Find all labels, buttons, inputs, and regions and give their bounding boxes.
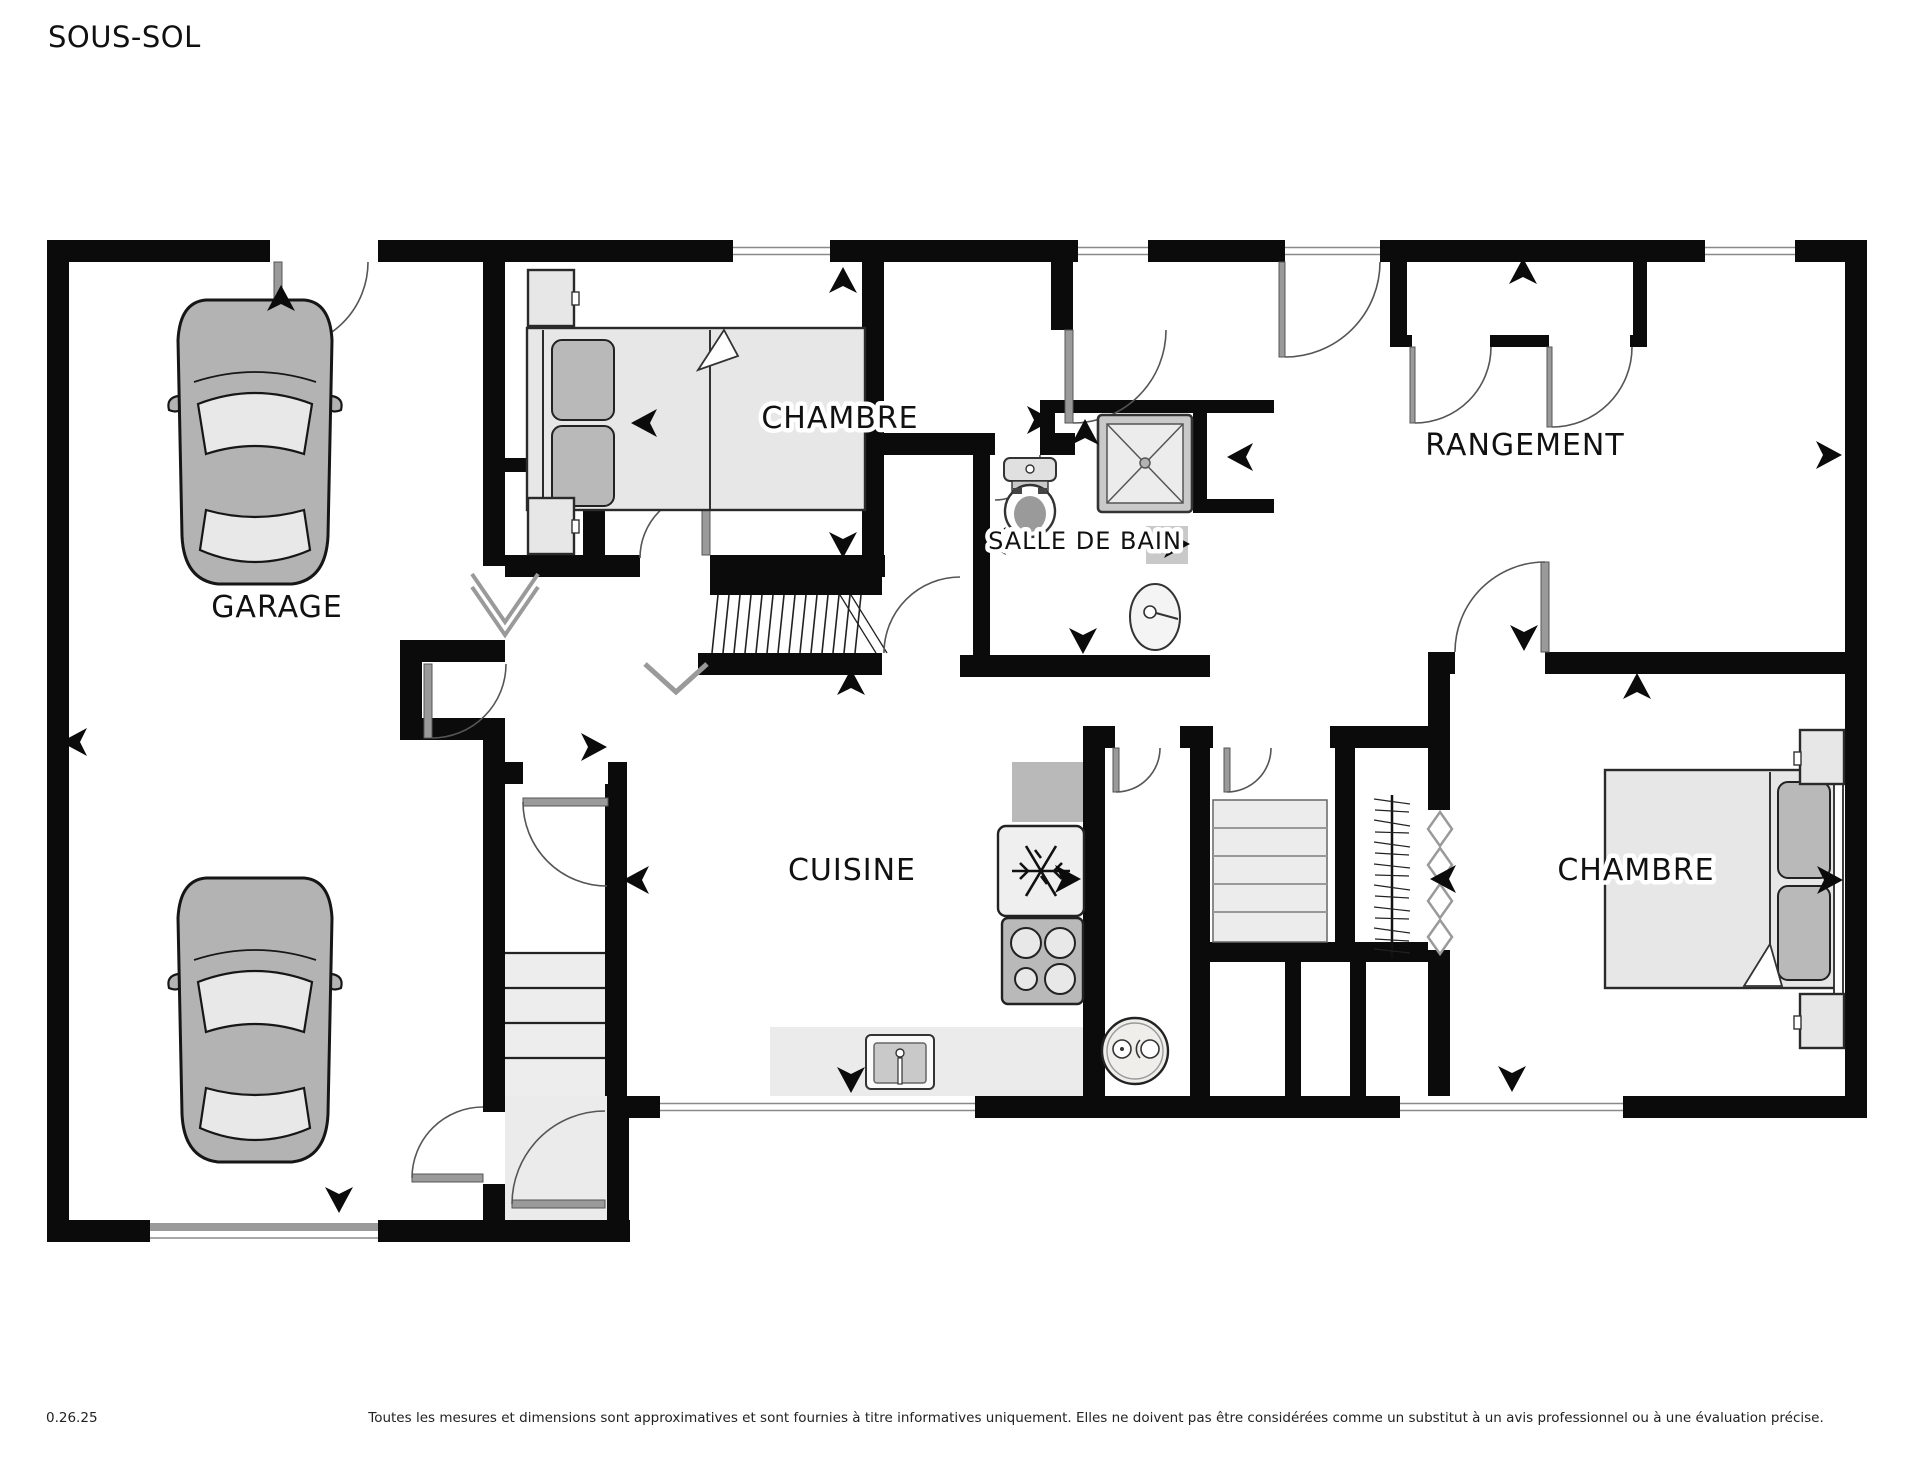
car-top-view-icon xyxy=(168,878,341,1162)
room-label-bedroom-top: CHAMBRE xyxy=(761,401,918,436)
door xyxy=(1547,347,1632,427)
shelving-unit xyxy=(1213,800,1327,942)
nightstand xyxy=(528,498,579,554)
nightstand xyxy=(528,270,579,326)
door xyxy=(412,1107,483,1182)
garage-door xyxy=(150,1220,378,1242)
door xyxy=(1455,562,1549,652)
window xyxy=(1705,240,1795,262)
door xyxy=(523,798,608,886)
car-top-view-icon xyxy=(168,300,341,584)
stairs-main xyxy=(712,595,887,653)
room-label-storage: RANGEMENT xyxy=(1425,428,1624,463)
garage-entry-opening xyxy=(270,240,378,262)
door xyxy=(1224,748,1271,792)
bed xyxy=(1605,730,1844,1048)
window xyxy=(660,1096,975,1118)
folding-door-icon xyxy=(472,574,538,635)
door xyxy=(884,577,960,653)
toilet-icon xyxy=(1004,458,1056,537)
stairs-to-entry xyxy=(505,953,605,1096)
nightstand xyxy=(1794,994,1844,1048)
floor-plan-page: SOUS-SOL xyxy=(0,0,1920,1483)
window xyxy=(1400,1096,1623,1118)
door xyxy=(1410,347,1491,423)
closet-hanging-rod xyxy=(1374,795,1410,958)
door xyxy=(1279,262,1380,357)
window xyxy=(1285,240,1380,262)
nightstand xyxy=(1794,730,1844,784)
footer-disclaimer: Toutes les mesures et dimensions sont ap… xyxy=(300,1410,1892,1426)
room-label-bathroom: SALLE DE BAIN xyxy=(988,527,1182,555)
floor-plan-drawing: GARAGE CHAMBRE SALLE DE BAIN RANGEMENT C… xyxy=(0,0,1920,1483)
footer-version: 0.26.25 xyxy=(46,1410,98,1426)
shower-x-icon xyxy=(1098,415,1192,512)
room-label-kitchen: CUISINE xyxy=(788,853,916,888)
water-heater-icon xyxy=(1102,1018,1168,1084)
room-label-bedroom-right: CHAMBRE xyxy=(1557,853,1714,888)
room-label-garage: GARAGE xyxy=(211,590,343,625)
kitchen-sink-icon xyxy=(866,1035,934,1089)
door xyxy=(1113,748,1160,792)
window xyxy=(733,240,830,262)
folding-door-icon xyxy=(645,664,707,692)
window xyxy=(1078,240,1148,262)
stove-icon xyxy=(1002,918,1083,1004)
fridge-icon xyxy=(998,826,1084,916)
